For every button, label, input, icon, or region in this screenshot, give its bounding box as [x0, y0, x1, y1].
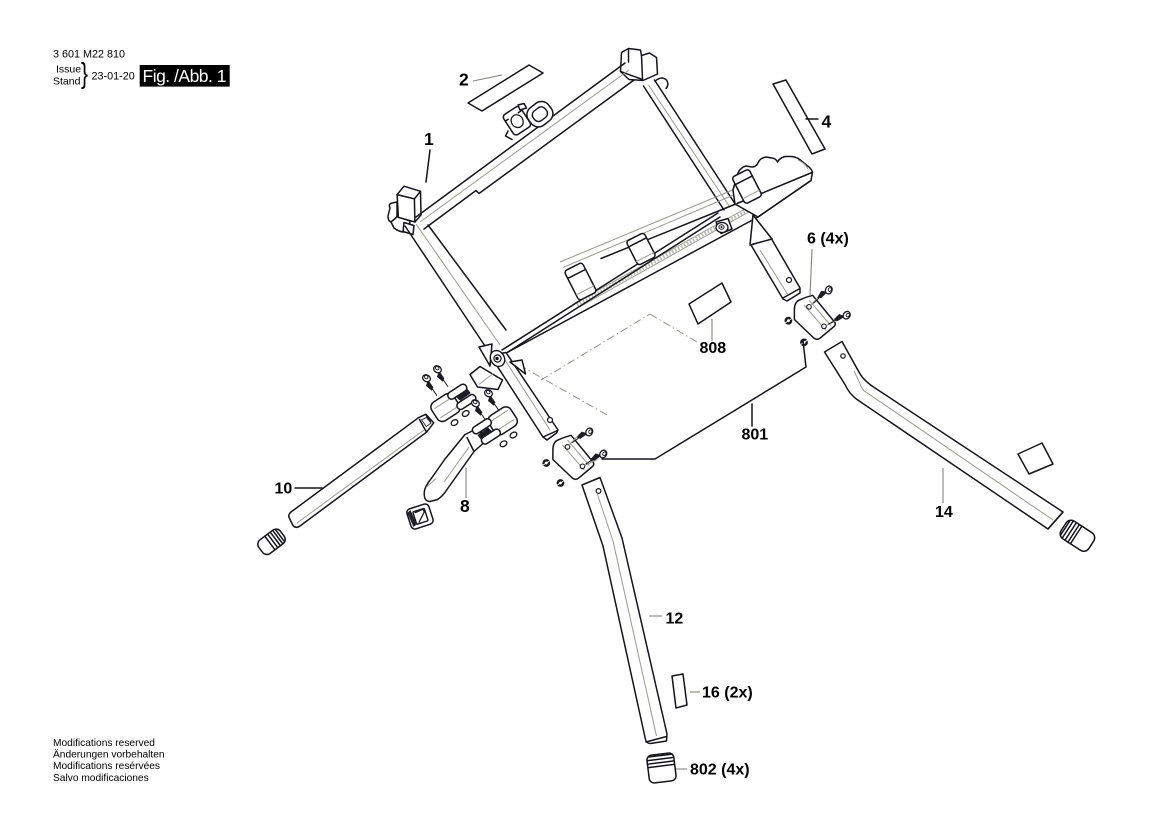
svg-text:Modifications reserved: Modifications reserved — [53, 738, 155, 749]
svg-text:802 (4x): 802 (4x) — [690, 762, 750, 779]
svg-text:12: 12 — [666, 611, 684, 628]
svg-text:6 (4x): 6 (4x) — [807, 231, 849, 248]
svg-text:14: 14 — [935, 504, 953, 521]
svg-text:8: 8 — [460, 496, 470, 516]
svg-text:1: 1 — [424, 129, 434, 149]
svg-text:2: 2 — [459, 70, 469, 90]
svg-text:Modifications resérvées: Modifications resérvées — [53, 761, 160, 772]
svg-text:Fig. /Abb. 1: Fig. /Abb. 1 — [143, 66, 227, 86]
svg-text:Salvo modificaciones: Salvo modificaciones — [53, 773, 149, 784]
svg-text:808: 808 — [700, 340, 727, 357]
svg-text:Änderungen vorbehalten: Änderungen vorbehalten — [53, 749, 165, 761]
svg-text:16 (2x): 16 (2x) — [702, 685, 753, 702]
svg-text:}: } — [81, 58, 88, 90]
svg-text:10: 10 — [275, 481, 293, 498]
svg-text:23-01-20: 23-01-20 — [92, 71, 135, 83]
svg-text:4: 4 — [822, 112, 832, 132]
svg-text:Issue: Issue — [56, 64, 81, 76]
svg-text:Stand: Stand — [53, 76, 81, 88]
svg-text:3 601 M22 810: 3 601 M22 810 — [53, 49, 125, 61]
svg-text:801: 801 — [742, 427, 769, 444]
